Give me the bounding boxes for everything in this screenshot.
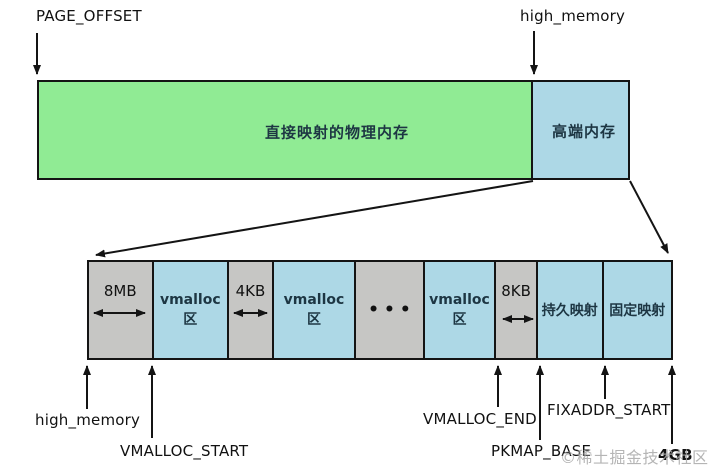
segment-8kb-gap: 8KB: [496, 262, 538, 358]
segment-vmalloc-3: vmalloc 区: [425, 262, 497, 358]
vmalloc-2-label: vmalloc: [284, 290, 345, 310]
segment-ellipsis: •••: [356, 262, 425, 358]
segment-8mb-gap: 8MB: [89, 262, 154, 358]
segment-fixed-mapping: 固定映射: [604, 262, 672, 358]
vmalloc-3-label: vmalloc: [429, 290, 490, 310]
fixaddr-start-label: FIXADDR_START: [547, 401, 671, 419]
high-memory-bottom-label: high_memory: [35, 411, 140, 429]
segment-persistent-mapping: 持久映射: [538, 262, 604, 358]
persistent-mapping-label: 持久映射: [542, 300, 598, 320]
vmalloc-end-label: VMALLOC_END: [423, 410, 537, 428]
vmalloc-3-label2: 区: [452, 310, 466, 330]
watermark-text: 稀土掘金技术社区: [577, 448, 709, 467]
vmalloc-2-label2: 区: [307, 310, 321, 330]
vmalloc-1-label: vmalloc: [160, 290, 221, 310]
juejin-logo-icon: ©: [560, 448, 577, 467]
watermark: ©稀土掘金技术社区: [560, 444, 709, 468]
high-memory-top-label: high_memory: [520, 7, 625, 25]
vmalloc-start-label: VMALLOC_START: [120, 442, 248, 460]
segment-4kb-gap-label: 4KB: [236, 282, 266, 300]
expand-line-left: [96, 181, 533, 255]
segment-vmalloc-1: vmalloc 区: [154, 262, 229, 358]
segment-8mb-gap-label: 8MB: [104, 282, 137, 300]
expand-line-right: [630, 181, 668, 253]
direct-mapped-label: 直接映射的物理内存: [265, 122, 409, 143]
fixed-mapping-label: 固定映射: [609, 300, 665, 320]
page-offset-label: PAGE_OFFSET: [36, 7, 142, 25]
ellipsis-label: •••: [363, 300, 416, 320]
high-memory-expanded-bar: 8MB vmalloc 区 4KB vmalloc 区 ••• vmalloc …: [87, 260, 673, 360]
vmalloc-1-label2: 区: [183, 310, 197, 330]
memory-layout-diagram: PAGE_OFFSET high_memory 直接映射的物理内存 高端内存 8…: [0, 0, 720, 476]
segment-vmalloc-2: vmalloc 区: [274, 262, 356, 358]
segment-4kb-gap: 4KB: [229, 262, 274, 358]
segment-8kb-gap-label: 8KB: [501, 282, 531, 300]
high-memory-region-label: 高端内存: [552, 121, 616, 142]
